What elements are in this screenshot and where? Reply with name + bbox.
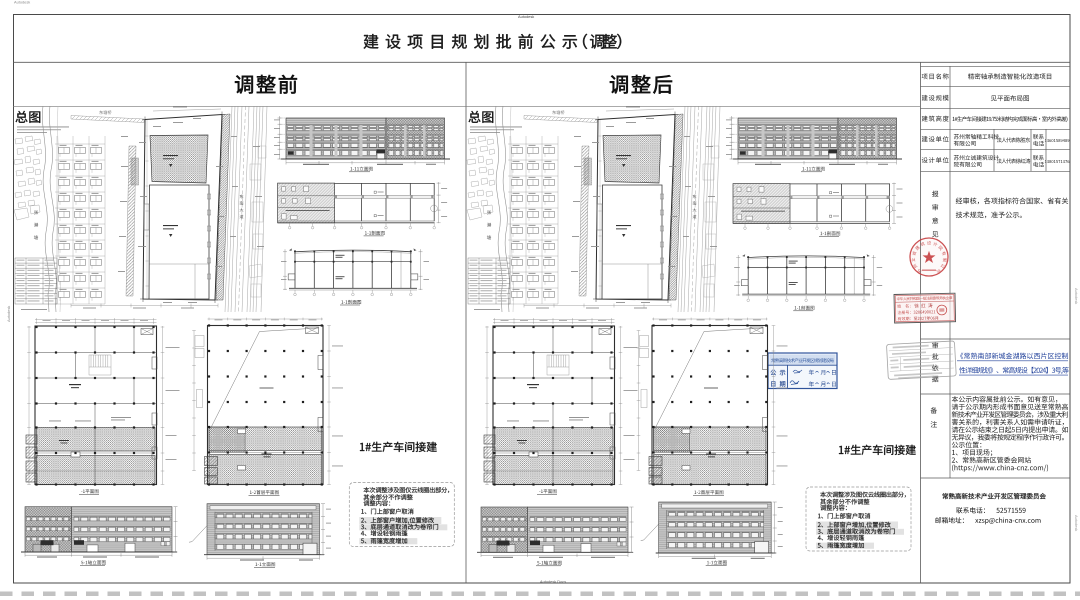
svg-text:Autodesk: Autodesk bbox=[6, 306, 11, 322]
svg-text:Autodesk: Autodesk bbox=[1074, 515, 1079, 531]
svg-text:Autodesk: Autodesk bbox=[518, 14, 534, 19]
svg-text:Autodesk Docs: Autodesk Docs bbox=[540, 579, 566, 584]
svg-text:Autodesk: Autodesk bbox=[14, 0, 30, 5]
svg-text:Autodesk: Autodesk bbox=[1074, 288, 1079, 304]
